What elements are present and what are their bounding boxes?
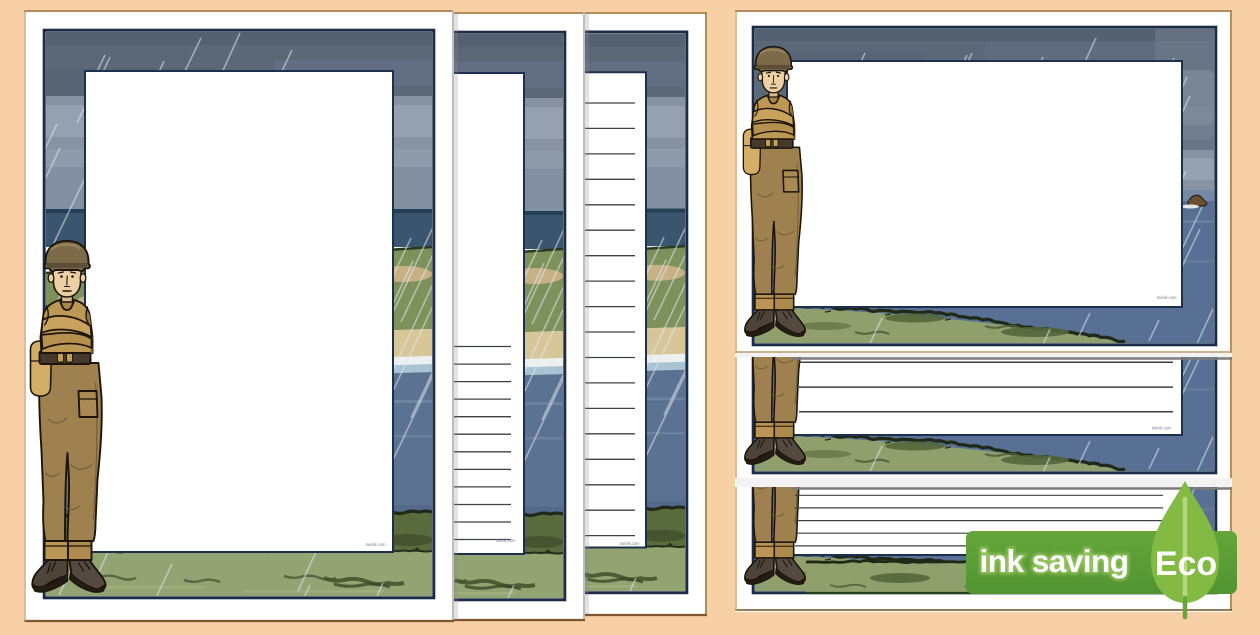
svg-text:twinkl.com: twinkl.com [366, 542, 386, 547]
svg-text:twinkl.com: twinkl.com [620, 541, 640, 546]
svg-text:twinkl.com: twinkl.com [496, 538, 516, 543]
svg-text:ink saving: ink saving [979, 543, 1128, 579]
svg-text:twinkl.com: twinkl.com [1157, 295, 1177, 300]
svg-text:Eco: Eco [1155, 545, 1217, 583]
svg-text:twinkl.com: twinkl.com [1152, 426, 1172, 431]
